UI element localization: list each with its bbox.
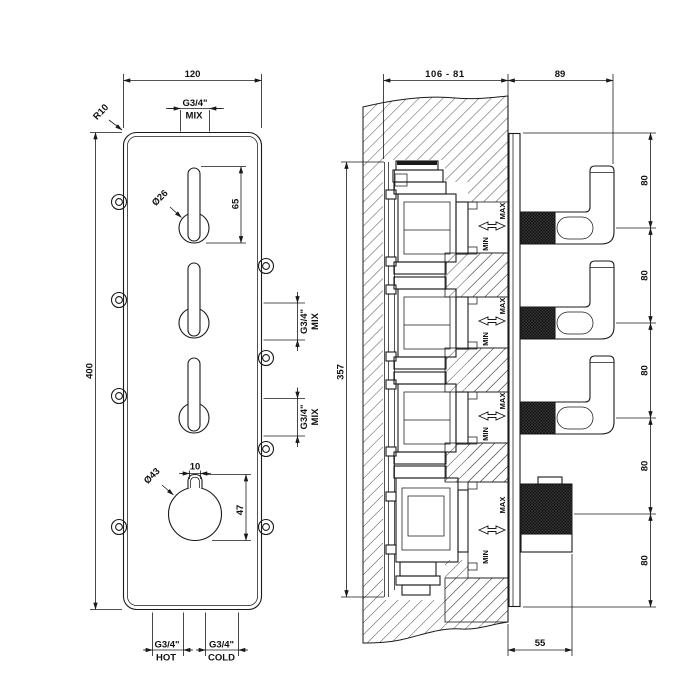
dim-label-spacing-4: 80 <box>640 461 651 472</box>
dim-label-plate-width: 120 <box>185 69 201 80</box>
dim-label-knob-nub: 10 <box>190 462 201 473</box>
label-side-port-1-name: MIX <box>310 312 321 330</box>
dim-label-spacing-5: 80 <box>640 555 651 566</box>
mounting-ear <box>112 520 127 535</box>
dim-label-rough-in: 106 - 81 <box>425 69 465 80</box>
dim-label-body-height: 357 <box>336 364 347 380</box>
label-top-port-size: G3/4" <box>182 98 207 109</box>
wall-between-cartridges <box>445 348 508 392</box>
label-hot-size: G3/4" <box>154 640 179 651</box>
label-max: MAX <box>498 298 507 315</box>
technical-drawing: 120 R10 G3/4" MIX Ø26 65 <box>0 0 700 700</box>
label-hot-name: HOT <box>156 653 176 664</box>
dim-label-knob-depth: 55 <box>535 638 546 649</box>
label-cold-name: COLD <box>208 653 235 664</box>
dim-label-spacing-1: 80 <box>640 175 651 186</box>
mounting-ear <box>112 195 127 210</box>
label-side-port-2-name: MIX <box>310 408 321 426</box>
trim-plate-side <box>509 134 520 607</box>
label-max: MAX <box>498 497 507 514</box>
label-side-port-1-size: G3/4" <box>299 309 310 334</box>
dim-label-lever-length: 65 <box>231 198 242 209</box>
label-side-port-2-size: G3/4" <box>299 404 310 429</box>
label-max: MAX <box>498 203 507 220</box>
wall-between-cartridges <box>445 443 508 482</box>
mounting-ear <box>259 520 274 535</box>
mounting-ear <box>112 293 127 308</box>
mounting-ear <box>259 259 274 274</box>
label-min: MIN <box>481 550 490 564</box>
wall-between-cartridges <box>445 253 508 297</box>
dim-label-spacing-3: 80 <box>640 365 651 376</box>
wall-between-cartridges <box>445 578 508 622</box>
mounting-ear <box>112 389 127 404</box>
label-min: MIN <box>481 332 490 346</box>
dim-label-external-depth: 89 <box>555 69 566 80</box>
dim-label-plate-height: 400 <box>85 363 96 379</box>
label-max: MAX <box>498 393 507 410</box>
label-min: MIN <box>481 427 490 441</box>
label-min: MIN <box>481 237 490 251</box>
dim-label-knob-height: 47 <box>235 505 246 516</box>
dim-label-spacing-2: 80 <box>640 270 651 281</box>
label-cold-size: G3/4" <box>209 640 234 651</box>
label-top-port-name: MIX <box>186 111 204 122</box>
mounting-ear <box>259 351 274 366</box>
mounting-ear <box>259 442 274 457</box>
